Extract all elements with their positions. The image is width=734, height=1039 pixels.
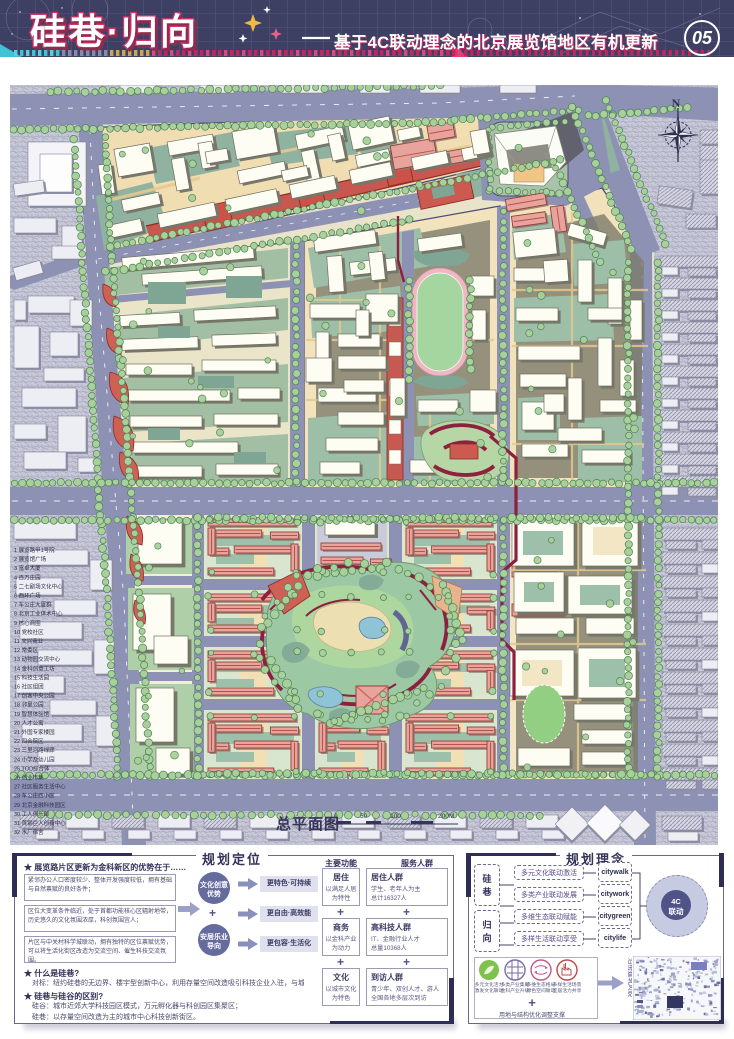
svg-text:多类产业集聚: 多类产业集聚 [501, 981, 530, 988]
svg-text:9 核心商圈: 9 核心商圈 [14, 619, 41, 627]
svg-text:24 小学及幼儿园: 24 小学及幼儿园 [14, 755, 55, 763]
svg-text:4 百万庄园: 4 百万庄园 [14, 573, 41, 581]
svg-text:27 社区服务生活中心: 27 社区服务生活中心 [14, 783, 66, 791]
svg-text:N: N [672, 96, 681, 110]
svg-text:25 TOD综合体: 25 TOD综合体 [14, 764, 50, 772]
svg-text:13 动物园交流中心: 13 动物园交流中心 [14, 655, 61, 663]
svg-text:宜居活力共享: 宜居活力共享 [553, 987, 582, 994]
svg-text:2 展览馆广场: 2 展览馆广场 [14, 555, 47, 563]
svg-text:50: 50 [360, 813, 368, 820]
svg-text:10 党校社区: 10 党校社区 [14, 628, 44, 636]
svg-text:11 文兴商业: 11 文兴商业 [14, 637, 44, 645]
svg-text:22 四合院区: 22 四合院区 [14, 737, 44, 745]
svg-text:总平面图: 总平面图 [276, 815, 340, 833]
svg-text:23 三里河路绿廊: 23 三里河路绿廊 [14, 746, 55, 754]
svg-text:+: + [528, 995, 536, 1010]
svg-text:用地与结构优化调整支撑: 用地与结构优化调整支撑 [499, 1011, 565, 1019]
svg-text:金科产业升级: 金科产业升级 [501, 987, 530, 994]
svg-text:绿色空间联动: 绿色空间联动 [527, 987, 556, 994]
svg-text:17 创客中央公园: 17 创客中央公园 [14, 692, 55, 700]
svg-text:5 二七剧场文化中心: 5 二七剧场文化中心 [14, 582, 63, 590]
svg-text:29 北京金融科技园区: 29 北京金融科技园区 [14, 801, 66, 809]
svg-text:19 智慧体验馆: 19 智慧体验馆 [14, 710, 50, 718]
svg-text:多元文化活力: 多元文化活力 [475, 981, 504, 988]
svg-text:26 创业市集: 26 创业市集 [14, 774, 44, 782]
svg-text:21 外国专家楼园: 21 外国专家楼园 [14, 728, 55, 736]
svg-text:3 富卓大厦: 3 富卓大厦 [14, 564, 41, 572]
svg-text:多样生活场景: 多样生活场景 [553, 981, 582, 988]
svg-text:200M: 200M [438, 813, 454, 820]
svg-text:激发文化联动: 激发文化联动 [475, 987, 504, 994]
svg-text:沿街建筑风貌: 沿街建筑风貌 [627, 958, 632, 998]
svg-text:多维生态格局: 多维生态格局 [527, 981, 556, 988]
svg-text:18 邻里公园: 18 邻里公园 [14, 701, 44, 709]
svg-text:6 西环广场: 6 西环广场 [14, 592, 41, 600]
svg-text:100: 100 [390, 813, 401, 820]
svg-text:1 展览路甲1号院: 1 展览路甲1号院 [14, 546, 55, 554]
svg-text:31 首钢巨人创新中心: 31 首钢巨人创新中心 [14, 819, 66, 827]
svg-text:30 工人俱乐部: 30 工人俱乐部 [14, 810, 50, 818]
svg-text:14 金科创意工坊: 14 金科创意工坊 [14, 664, 55, 672]
svg-text:8 北京工业体术中心: 8 北京工业体术中心 [14, 610, 63, 618]
svg-text:28 车公庄西小区: 28 车公庄西小区 [14, 792, 55, 800]
svg-text:16 社区组团: 16 社区组团 [14, 683, 44, 691]
svg-text:0: 0 [334, 813, 338, 820]
svg-text:12 常委区: 12 常委区 [14, 646, 39, 654]
svg-text:15 科技生活园: 15 科技生活园 [14, 673, 50, 681]
svg-text:20 人才公寓: 20 人才公寓 [14, 719, 44, 727]
svg-text:32 水厂宿舍: 32 水厂宿舍 [14, 828, 44, 836]
svg-text:7 车公庄大厦群: 7 车公庄大厦群 [14, 601, 52, 609]
